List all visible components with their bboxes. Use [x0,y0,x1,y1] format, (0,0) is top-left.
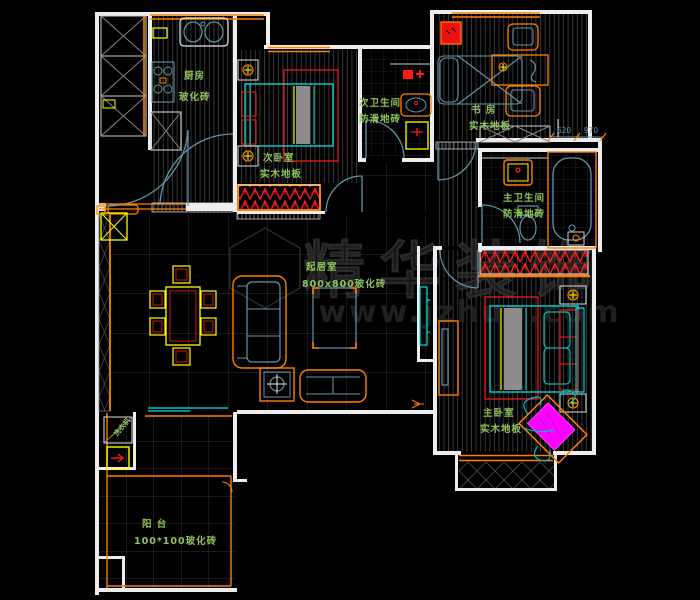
dim-value-2: 970 [584,126,599,135]
wardrobe2-icon [238,185,320,210]
master-basin-icon [504,160,532,185]
study-floor-label: 实木地板 [469,120,511,132]
living-name: 起居室 [305,261,338,273]
bedroom1-name: 主卧室 [483,407,515,419]
bath2-name: 次卫生间 [359,97,401,109]
dim-value-1: 620 [557,126,572,135]
study-name: 书 房 [471,104,496,116]
bath2-floor-label: 防滑地砖 [359,113,401,125]
bedroom1-floor-label: 实木地板 [480,423,522,435]
wardrobe1-icon [478,250,590,276]
kitchen-floor [152,16,233,206]
balcony-floor [99,414,235,591]
balcony-name: 阳 台 [142,518,167,530]
ac-unit-icon [441,22,461,44]
bath1-floor-label: 防滑地砖 [503,208,545,220]
kitchen-name: 厨房 [184,70,205,82]
balcony-floor-label: 100*100玻化砖 [134,535,217,547]
baywindow-sill [459,462,555,488]
entry-cabinets [101,16,146,136]
hall-floor [362,162,432,212]
bedroom2-name: 次卧室 [263,152,295,164]
living-floor-label: 800x800玻化砖 [302,278,386,290]
bath1-name: 主卫生间 [503,192,545,204]
kitchen-floor-label: 玻化砖 [179,91,211,103]
floorplan-canvas: 精华装饰 www.jzhua.com [0,0,700,600]
cad-floorplan: 精华装饰 www.jzhua.com [0,0,700,600]
bedroom2-floor-label: 实木地板 [260,168,302,180]
